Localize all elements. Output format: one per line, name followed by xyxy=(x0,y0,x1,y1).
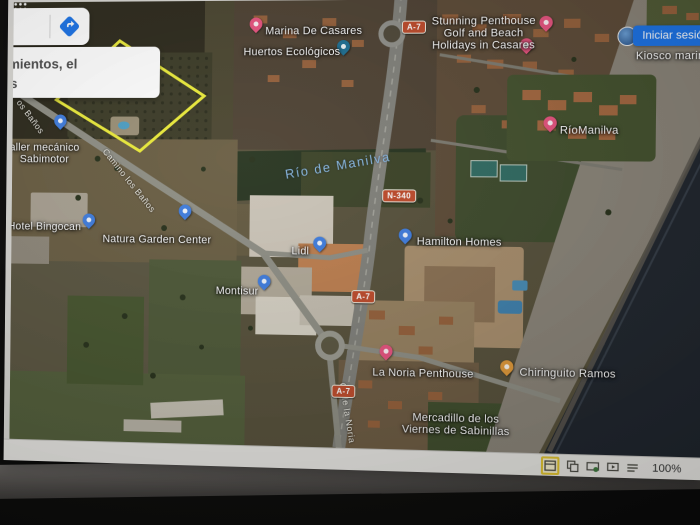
map-label-hotel-bingocan[interactable]: Hotel Bingocan xyxy=(9,221,81,233)
search-suggestion[interactable]: azamientos, el anos xyxy=(9,47,160,98)
map-label-natura-garden-center[interactable]: Natura Garden Center xyxy=(102,233,211,246)
apps-grid-icon[interactable] xyxy=(14,2,27,16)
road-badge-a7: A-7 xyxy=(402,21,426,34)
map-label-riomanilva[interactable]: RíoManilva xyxy=(560,125,619,137)
divider xyxy=(49,15,50,38)
map-label-la-noria-penthouse[interactable]: La Noria Penthouse xyxy=(372,366,473,380)
map-label-mercadillo-sabinillas[interactable]: Mercadillo de los Viernes de Sabinillas xyxy=(398,411,514,438)
map-label-chiringuito-ramos[interactable]: Chiringuito Ramos xyxy=(519,367,615,381)
map-label-kiosco-marina[interactable]: Kiosco marina xyxy=(636,50,700,63)
map-label-hamilton-homes[interactable]: Hamilton Homes xyxy=(417,236,502,249)
map-label-stunning-penthouse[interactable]: Stunning Penthouse Golf and Beach Holida… xyxy=(428,15,540,52)
directions-icon xyxy=(59,15,81,37)
road-badge-a7: A-7 xyxy=(331,385,355,399)
normal-view-icon[interactable] xyxy=(541,456,560,475)
sign-in-button[interactable]: Iniciar sesión xyxy=(633,25,700,46)
notes-view-icon[interactable] xyxy=(626,461,639,474)
map-label-huertos-ecologicos[interactable]: Huertos Ecológicos xyxy=(243,46,340,58)
directions-button[interactable] xyxy=(59,16,80,38)
map-label-taller-mecanico-sabimotor[interactable]: aller mecánico Sabimotor xyxy=(9,142,92,166)
slide-sorter-view-icon[interactable] xyxy=(566,460,578,473)
zoom-level[interactable]: 100% xyxy=(652,462,681,475)
map-label-montisur[interactable]: Montisur xyxy=(216,285,259,298)
reading-view-icon[interactable] xyxy=(586,460,600,473)
map-label-marina-de-casares[interactable]: Marina De Casares xyxy=(265,25,362,37)
map-label-lidl[interactable]: Lidl xyxy=(291,245,309,257)
road-badge-a7: A-7 xyxy=(351,290,375,303)
slide-show-view-icon[interactable] xyxy=(606,461,619,474)
monitor-screen: Río de Manilva os Baños Camino los Baños… xyxy=(4,0,700,480)
road-badge-n340: N-340 xyxy=(382,189,416,202)
satellite-map[interactable]: Río de Manilva os Baños Camino los Baños… xyxy=(9,0,700,458)
